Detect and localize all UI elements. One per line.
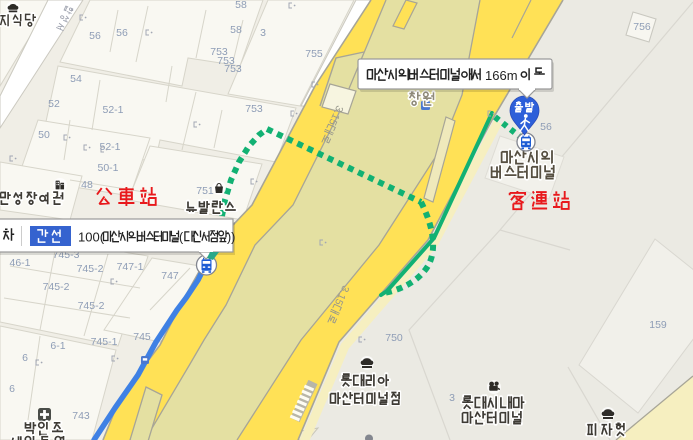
svg-text:747-1: 747-1 xyxy=(117,261,144,273)
svg-text:166m: 166m xyxy=(485,68,518,83)
svg-text:751: 751 xyxy=(196,185,214,197)
svg-text:58: 58 xyxy=(230,24,242,36)
svg-text:56: 56 xyxy=(89,30,101,42)
svg-text:50: 50 xyxy=(38,129,50,141)
svg-text:56: 56 xyxy=(540,121,552,133)
svg-text:745-2: 745-2 xyxy=(78,300,105,312)
svg-text:756: 756 xyxy=(633,21,651,33)
svg-text:6: 6 xyxy=(9,383,15,395)
svg-text:50-1: 50-1 xyxy=(97,162,118,174)
svg-text:743: 743 xyxy=(72,410,90,422)
svg-text:3: 3 xyxy=(260,27,266,39)
svg-text:753: 753 xyxy=(224,63,242,75)
svg-text:46-1: 46-1 xyxy=(9,257,30,269)
svg-text:48: 48 xyxy=(81,179,93,191)
svg-text:56: 56 xyxy=(116,27,128,39)
svg-text:52: 52 xyxy=(48,98,60,110)
svg-text:745-1: 745-1 xyxy=(91,336,118,348)
svg-text:100(: 100( xyxy=(78,230,105,245)
svg-text:753: 753 xyxy=(245,103,263,115)
svg-text:159: 159 xyxy=(649,319,667,331)
svg-text:755: 755 xyxy=(305,48,323,60)
svg-text:747: 747 xyxy=(161,270,179,282)
svg-text:3: 3 xyxy=(449,392,455,404)
svg-text:745-2: 745-2 xyxy=(43,281,70,293)
svg-text:745: 745 xyxy=(133,331,151,343)
svg-text:54: 54 xyxy=(70,73,82,85)
svg-text:)): )) xyxy=(227,231,235,245)
svg-text:6-1: 6-1 xyxy=(50,340,65,352)
svg-text:52-1: 52-1 xyxy=(102,104,123,116)
svg-text:58: 58 xyxy=(235,0,247,11)
svg-text:6: 6 xyxy=(22,352,28,364)
svg-text:745-2: 745-2 xyxy=(77,263,104,275)
svg-text:750: 750 xyxy=(385,332,403,344)
